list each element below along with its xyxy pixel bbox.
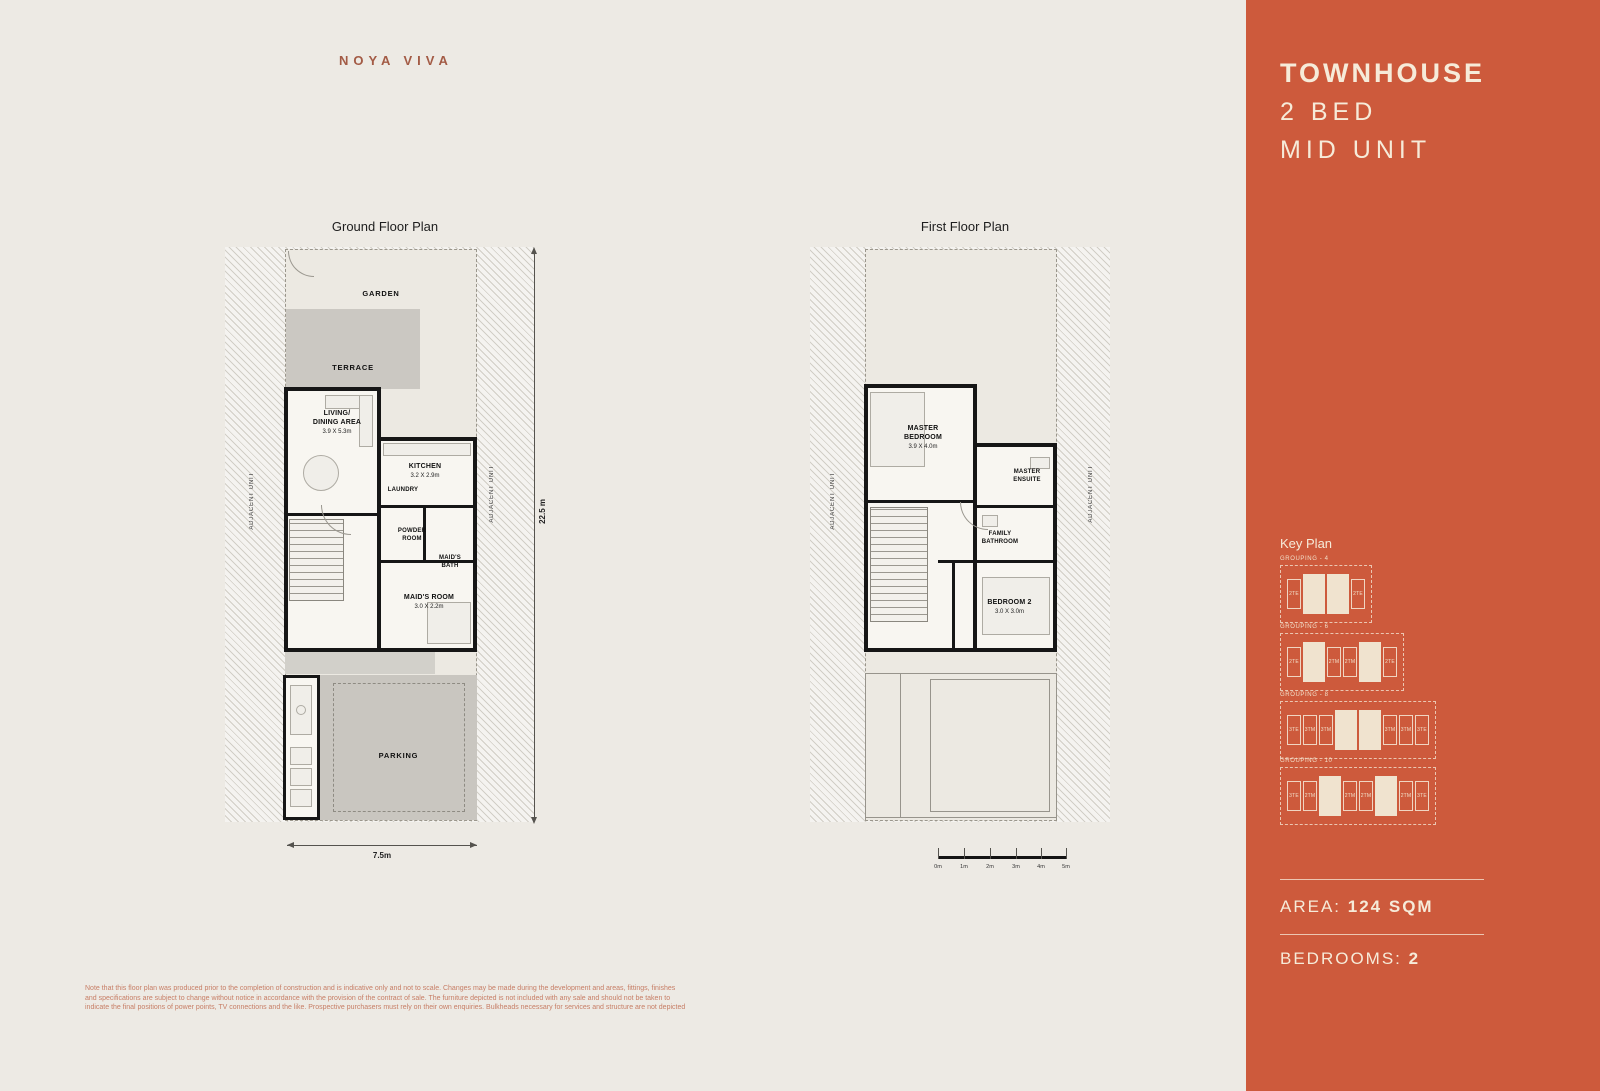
unit-type-label: 2TM: [1329, 659, 1340, 665]
master-ensuite-name: MASTER ENSUITE: [998, 469, 1056, 484]
scale-tick: [990, 848, 991, 859]
brochure-page: NOYA VIVA Ground Floor Plan GARDEN TERRA…: [0, 0, 1600, 1091]
unit-type-label: 2TE: [1353, 591, 1363, 597]
first-floor-title: First Floor Plan: [810, 219, 1120, 234]
bedrooms-value: 2: [1409, 949, 1420, 968]
adjacent-unit-left: ADJACENT UNIT: [249, 472, 255, 530]
parking-divider: [900, 673, 901, 818]
walkway: [285, 652, 435, 674]
kitchen-dims: 3.2 X 2.9m: [385, 473, 465, 479]
unit-cell: 2TM: [1359, 781, 1373, 811]
adjacent-unit-left: ADJACENT UNIT: [830, 472, 836, 530]
maids-bath-name: MAID'S BATH: [425, 555, 475, 570]
terrace-area: [286, 309, 420, 389]
terrace-label-text: TERRACE: [332, 363, 374, 372]
laundry-name: LAUNDRY: [371, 487, 435, 495]
unit-cell-highlighted: [1375, 776, 1397, 816]
unit-cell: 3TM: [1383, 715, 1397, 745]
scale-label: 3m: [1007, 864, 1025, 870]
scale-label: 0m: [929, 864, 947, 870]
keyplan-grouping-4: GROUPING - 4 2TE 2TE: [1280, 556, 1372, 623]
laundry-label: LAUNDRY: [371, 487, 435, 495]
divider: [1280, 879, 1484, 880]
maids-room-name: MAID'S ROOM: [383, 594, 475, 603]
unit-cell: 3TE: [1415, 781, 1429, 811]
dimension-arrow: [287, 842, 294, 848]
unit-cell-highlighted: [1359, 710, 1381, 750]
shelf: [290, 789, 312, 807]
unit-title: TOWNHOUSE 2 BED MID UNIT: [1280, 58, 1485, 165]
unit-cell: 3TM: [1303, 715, 1317, 745]
adjacent-unit-right: ADJACENT UNIT: [1088, 465, 1094, 523]
master-ensuite-label: MASTER ENSUITE: [998, 469, 1056, 484]
grouping-label: GROUPING - 4: [1280, 556, 1372, 562]
unit-cell-highlighted: [1319, 776, 1341, 816]
grouping-diagram: 2TE 2TM 2TM 2TE: [1280, 633, 1404, 691]
garden-label-text: GARDEN: [362, 289, 399, 298]
parking-canopy: [930, 679, 1050, 812]
partition-wall: [868, 500, 973, 503]
disclaimer-line: and specifications are subject to change…: [85, 994, 755, 1004]
height-dimension-label: 22.5 m: [538, 499, 547, 524]
powder-room-name: POWDER ROOM: [383, 528, 441, 543]
height-dimension-line: [534, 251, 535, 819]
unit-cell: 2TM: [1303, 781, 1317, 811]
master-bedroom-label: MASTER BEDROOM 3.9 X 4.0m: [868, 425, 978, 450]
unit-cell: 3TE: [1415, 715, 1429, 745]
brand-name: NOYA VIVA: [339, 53, 453, 68]
unit-cell-highlighted: [1327, 574, 1349, 614]
unit-type-label: 3TM: [1321, 727, 1332, 733]
disclaimer-line: Note that this floor plan was produced p…: [85, 984, 755, 994]
shelf: [290, 747, 312, 765]
unit-type-label: 2TE: [1289, 659, 1299, 665]
partition-wall: [952, 563, 955, 649]
master-bedroom-name: MASTER BEDROOM: [868, 425, 978, 443]
kitchen-counter: [383, 443, 471, 456]
scale-bar: [938, 856, 1067, 859]
terrace-label: TERRACE: [286, 357, 420, 375]
unit-type-label: 3TM: [1385, 727, 1396, 733]
partition-wall: [381, 505, 474, 508]
keyplan-grouping-10: GROUPING - 10 3TE 2TM 2TM 2TM 2TM 3TE: [1280, 758, 1436, 825]
info-panel: TOWNHOUSE 2 BED MID UNIT Key Plan GROUPI…: [1246, 0, 1600, 1091]
unit-type-label: 3TM: [1305, 727, 1316, 733]
unit-type-title: TOWNHOUSE: [1280, 58, 1485, 89]
width-dimension-line: [287, 845, 477, 846]
unit-type-label: 3TE: [1417, 727, 1427, 733]
scale-tick: [938, 848, 939, 859]
scale-tick: [1041, 848, 1042, 859]
dimension-arrow: [531, 247, 537, 254]
unit-bed-title: 2 BED: [1280, 98, 1485, 127]
area-label: AREA:: [1280, 897, 1341, 916]
master-bedroom-dims: 3.9 X 4.0m: [868, 444, 978, 450]
keyplan-grouping-8: GROUPING - 8 3TE 3TM 3TM 3TM 3TM 3TE: [1280, 692, 1436, 759]
unit-cell: 2TE: [1351, 579, 1365, 609]
bedroom2-label: BEDROOM 2 3.0 X 3.0m: [962, 599, 1057, 615]
partition-wall: [938, 560, 1053, 563]
staircase: [870, 507, 928, 622]
unit-type-label: 3TE: [1289, 793, 1299, 799]
adjacent-unit-right: ADJACENT UNIT: [489, 465, 495, 523]
unit-cell: 2TE: [1287, 647, 1301, 677]
bedrooms-label: BEDROOMS:: [1280, 949, 1402, 968]
unit-type-label: 2TM: [1345, 659, 1356, 665]
living-dining-label: LIVING/ DINING AREA 3.9 X 5.3m: [287, 410, 387, 435]
unit-cell: 3TE: [1287, 781, 1301, 811]
washbasin: [982, 515, 998, 527]
unit-type-label: 2TM: [1345, 793, 1356, 799]
unit-cell-highlighted: [1303, 642, 1325, 682]
grouping-label: GROUPING - 6: [1280, 624, 1404, 630]
garden-label: GARDEN: [285, 283, 477, 301]
grouping-diagram: 3TE 2TM 2TM 2TM 2TM 3TE: [1280, 767, 1436, 825]
unit-cell: 2TM: [1343, 647, 1357, 677]
bathtub: [1030, 457, 1050, 469]
unit-cell: 2TM: [1399, 781, 1413, 811]
unit-type-label: 3TE: [1289, 727, 1299, 733]
dining-table: [303, 455, 339, 491]
unit-type-label: 2TM: [1361, 793, 1372, 799]
ground-floor-title: Ground Floor Plan: [225, 219, 545, 234]
scale-label: 1m: [955, 864, 973, 870]
unit-type-label: 3TM: [1401, 727, 1412, 733]
grouping-diagram: 2TE 2TE: [1280, 565, 1372, 623]
bedroom2-name: BEDROOM 2: [962, 599, 1057, 608]
grouping-label: GROUPING - 10: [1280, 758, 1436, 764]
disclaimer: Note that this floor plan was produced p…: [85, 984, 755, 1013]
unit-type-label: 2TM: [1401, 793, 1412, 799]
grouping-diagram: 3TE 3TM 3TM 3TM 3TM 3TE: [1280, 701, 1436, 759]
family-bathroom-name: FAMILY BATHROOM: [968, 531, 1032, 546]
scale-label: 2m: [981, 864, 999, 870]
scale-tick: [1066, 848, 1067, 859]
bedrooms-stat: BEDROOMS: 2: [1280, 949, 1420, 969]
ground-floor-plan: GARDEN TERRACE LIVING/ DINING AREA 3.9 X…: [225, 247, 545, 877]
unit-type-label: 2TE: [1385, 659, 1395, 665]
powder-room-label: POWDER ROOM: [383, 528, 441, 543]
sink-drain: [296, 705, 306, 715]
unit-cell-highlighted: [1303, 574, 1325, 614]
unit-cell: 3TM: [1319, 715, 1333, 745]
bedroom2-dims: 3.0 X 3.0m: [962, 609, 1057, 615]
unit-type-label: 3TE: [1417, 793, 1427, 799]
width-dimension-label: 7.5m: [287, 851, 477, 860]
shelf: [290, 768, 312, 786]
divider: [1280, 934, 1484, 935]
area-stat: AREA: 124 SQM: [1280, 897, 1434, 917]
partition-wall: [977, 505, 1053, 508]
keyplan-grouping-6: GROUPING - 6 2TE 2TM 2TM 2TE: [1280, 624, 1404, 691]
parking-label-text: PARKING: [379, 751, 419, 760]
scale-label: 5m: [1057, 864, 1075, 870]
kitchen-label: KITCHEN 3.2 X 2.9m: [385, 463, 465, 479]
key-plan-title: Key Plan: [1280, 536, 1332, 551]
kitchen-name: KITCHEN: [385, 463, 465, 472]
first-floor-plan: MASTER BEDROOM 3.9 X 4.0m MASTER ENSUITE…: [810, 247, 1120, 887]
unit-cell: 2TE: [1383, 647, 1397, 677]
unit-type-label: 2TM: [1305, 793, 1316, 799]
maids-room-dims: 3.0 X 2.2m: [383, 604, 475, 610]
unit-position-title: MID UNIT: [1280, 136, 1485, 165]
maids-room-label: MAID'S ROOM 3.0 X 2.2m: [383, 594, 475, 610]
parking-label: PARKING: [320, 745, 477, 763]
maids-bath-label: MAID'S BATH: [425, 555, 475, 570]
unit-type-label: 2TE: [1289, 591, 1299, 597]
living-dining-dims: 3.9 X 5.3m: [287, 429, 387, 435]
family-bathroom-label: FAMILY BATHROOM: [968, 531, 1032, 546]
unit-cell: 2TM: [1343, 781, 1357, 811]
area-value: 124 SQM: [1348, 897, 1434, 916]
grouping-label: GROUPING - 8: [1280, 692, 1436, 698]
living-dining-name: LIVING/ DINING AREA: [287, 410, 387, 428]
scale-tick: [1016, 848, 1017, 859]
disclaimer-line: indicate the final positions of power po…: [85, 1003, 755, 1013]
unit-cell: 3TE: [1287, 715, 1301, 745]
unit-cell-highlighted: [1359, 642, 1381, 682]
scale-label: 4m: [1032, 864, 1050, 870]
scale-tick: [964, 848, 965, 859]
unit-cell: 2TE: [1287, 579, 1301, 609]
unit-cell: 2TM: [1327, 647, 1341, 677]
unit-cell-highlighted: [1335, 710, 1357, 750]
dimension-arrow: [531, 817, 537, 824]
dimension-arrow: [470, 842, 477, 848]
unit-cell: 3TM: [1399, 715, 1413, 745]
